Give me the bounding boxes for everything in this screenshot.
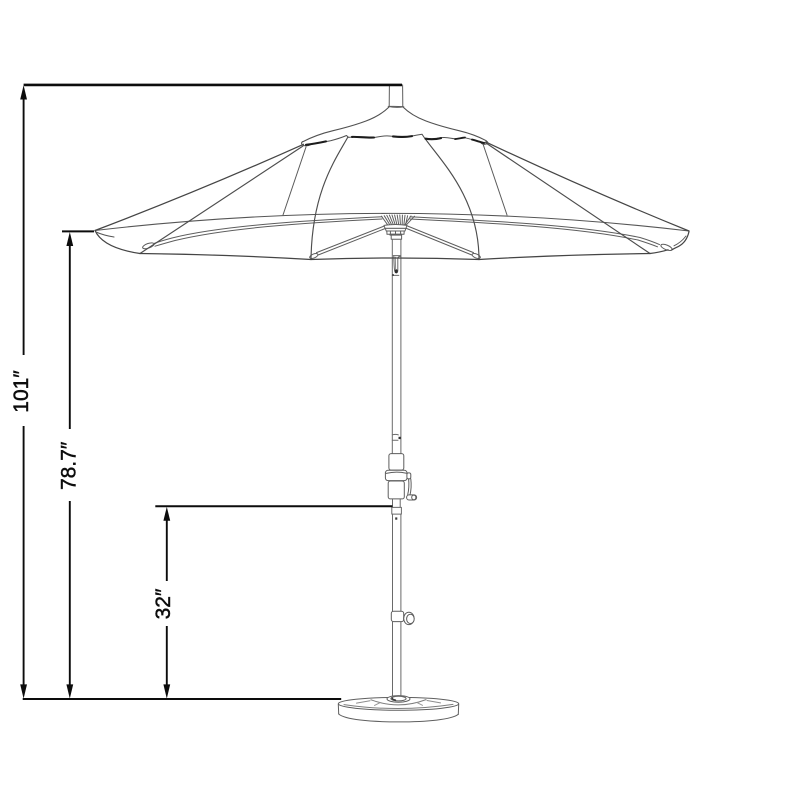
svg-text:101″: 101″ xyxy=(10,370,33,413)
svg-text:32″: 32″ xyxy=(152,588,175,619)
svg-text:78.7″: 78.7″ xyxy=(57,441,80,490)
